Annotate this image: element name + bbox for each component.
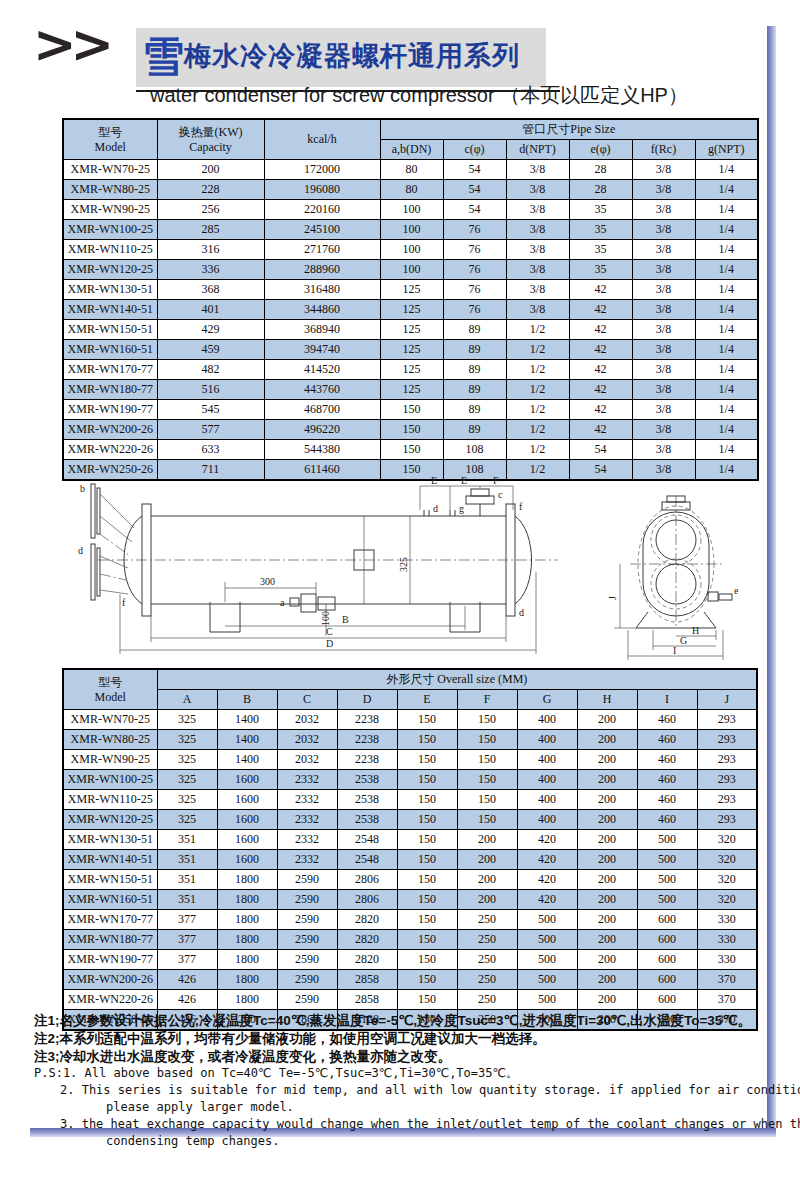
value-cell: 42	[569, 340, 632, 360]
value-cell: 2858	[337, 990, 397, 1010]
sub-col-header: A	[157, 690, 217, 710]
value-cell: 293	[697, 810, 757, 830]
value-cell: 42	[569, 300, 632, 320]
value-cell: 377	[157, 910, 217, 930]
value-cell: 325	[157, 810, 217, 830]
table-row: XMR-WN200-26577496220150891/2423/81/4	[63, 420, 758, 440]
value-cell: 76	[443, 280, 506, 300]
model-cell: XMR-WN170-77	[63, 910, 157, 930]
table-row: XMR-WN160-51459394740125891/2423/81/4	[63, 340, 758, 360]
value-cell: 500	[637, 830, 697, 850]
table-row: XMR-WN150-51429368940125891/2423/81/4	[63, 320, 758, 340]
table-row: XMR-WN110-253251600233225381501504002004…	[63, 790, 757, 810]
value-cell: 1/4	[695, 200, 758, 220]
table-row: XMR-WN200-264261800259028581502505002006…	[63, 970, 757, 990]
table-row: XMR-WN70-2520017200080543/8283/81/4	[63, 160, 758, 180]
value-cell: 271760	[264, 240, 380, 260]
value-cell: 150	[380, 440, 443, 460]
model-cell: XMR-WN90-25	[63, 200, 157, 220]
port-label-d: d	[78, 545, 83, 556]
model-cell: XMR-WN180-77	[63, 930, 157, 950]
value-cell: 200	[577, 870, 637, 890]
value-cell: 35	[569, 240, 632, 260]
value-cell: 2590	[277, 950, 337, 970]
value-cell: 400	[517, 790, 577, 810]
value-cell: 3/8	[506, 240, 569, 260]
dim-label-j: J	[607, 596, 618, 600]
value-cell: 394740	[264, 340, 380, 360]
value-cell: 150	[397, 990, 457, 1010]
sub-col-header: C	[277, 690, 337, 710]
value-cell: 2590	[277, 910, 337, 930]
value-cell: 245100	[264, 220, 380, 240]
value-cell: 500	[637, 850, 697, 870]
col-header-pipe-size: 管口尺寸Pipe Size	[380, 119, 758, 140]
sub-col-header: a,b(DN)	[380, 140, 443, 160]
value-cell: 150	[397, 770, 457, 790]
page-border-right	[767, 26, 776, 1136]
value-cell: 325	[157, 770, 217, 790]
value-cell: 414520	[264, 360, 380, 380]
value-cell: 2538	[337, 770, 397, 790]
value-cell: 250	[457, 930, 517, 950]
value-cell: 3/8	[632, 260, 695, 280]
value-cell: 460	[637, 750, 697, 770]
table-row: XMR-WN160-513511800259028061502004202005…	[63, 890, 757, 910]
model-cell: XMR-WN190-77	[63, 400, 157, 420]
value-cell: 100	[380, 260, 443, 280]
value-cell: 150	[380, 420, 443, 440]
value-cell: 80	[380, 160, 443, 180]
value-cell: 1400	[217, 710, 277, 730]
value-cell: 370	[697, 990, 757, 1010]
value-cell: 89	[443, 360, 506, 380]
model-cell: XMR-WN140-51	[63, 300, 157, 320]
value-cell: 80	[380, 180, 443, 200]
value-cell: 336	[157, 260, 264, 280]
value-cell: 89	[443, 420, 506, 440]
value-cell: 2538	[337, 810, 397, 830]
value-cell: 3/8	[506, 160, 569, 180]
value-cell: 545	[157, 400, 264, 420]
value-cell: 3/8	[632, 420, 695, 440]
model-cell: XMR-WN80-25	[63, 730, 157, 750]
value-cell: 2332	[277, 790, 337, 810]
value-cell: 3/8	[506, 280, 569, 300]
value-cell: 1600	[217, 850, 277, 870]
sub-col-header: D	[337, 690, 397, 710]
sub-col-header: E	[397, 690, 457, 710]
value-cell: 1/2	[506, 400, 569, 420]
table-subheader-row: ABCDEFGHIJ	[63, 690, 757, 710]
value-cell: 2820	[337, 930, 397, 950]
value-cell: 2820	[337, 910, 397, 930]
model-cell: XMR-WN160-51	[63, 340, 157, 360]
value-cell: 76	[443, 240, 506, 260]
value-cell: 42	[569, 380, 632, 400]
value-cell: 150	[380, 400, 443, 420]
value-cell: 1/4	[695, 260, 758, 280]
value-cell: 250	[457, 950, 517, 970]
value-cell: 1/4	[695, 320, 758, 340]
value-cell: 1400	[217, 730, 277, 750]
value-cell: 250	[457, 970, 517, 990]
ps-note-2b: please apply larger model.	[34, 1099, 764, 1116]
sub-col-header: f(Rc)	[632, 140, 695, 160]
value-cell: 293	[697, 750, 757, 770]
value-cell: 1/2	[506, 380, 569, 400]
col-header-model-en: Model	[64, 140, 157, 155]
value-cell: 2820	[337, 950, 397, 970]
ps-note-3b: condensing temp changes.	[34, 1133, 764, 1150]
value-cell: 42	[569, 400, 632, 420]
dim-label-d4: D	[326, 638, 333, 649]
value-cell: 200	[457, 850, 517, 870]
model-cell: XMR-WN130-51	[63, 280, 157, 300]
value-cell: 1800	[217, 890, 277, 910]
value-cell: 200	[577, 970, 637, 990]
value-cell: 42	[569, 320, 632, 340]
value-cell: 500	[637, 870, 697, 890]
value-cell: 3/8	[632, 280, 695, 300]
value-cell: 426	[157, 970, 217, 990]
value-cell: 150	[457, 790, 517, 810]
table-row: XMR-WN140-513511600233225481502004202005…	[63, 850, 757, 870]
value-cell: 400	[517, 710, 577, 730]
col-header-model: 型号 Model	[63, 119, 157, 160]
value-cell: 256	[157, 200, 264, 220]
model-cell: XMR-WN100-25	[63, 220, 157, 240]
value-cell: 496220	[264, 420, 380, 440]
model-cell: XMR-WN110-25	[63, 240, 157, 260]
table-row: XMR-WN140-51401344860125763/8423/81/4	[63, 300, 758, 320]
value-cell: 351	[157, 850, 217, 870]
value-cell: 150	[457, 810, 517, 830]
page-title: 梅水冷冷凝器螺杆通用系列	[184, 41, 520, 71]
value-cell: 200	[577, 790, 637, 810]
value-cell: 200	[457, 890, 517, 910]
value-cell: 320	[697, 870, 757, 890]
title-background: 雪梅水冷冷凝器螺杆通用系列	[136, 28, 546, 87]
value-cell: 3/8	[506, 200, 569, 220]
value-cell: 293	[697, 710, 757, 730]
value-cell: 468700	[264, 400, 380, 420]
value-cell: 200	[577, 730, 637, 750]
ps-note-1: P.S:1. All above based on Tc=40℃ Te=-5℃,…	[34, 1065, 764, 1082]
value-cell: 2548	[337, 850, 397, 870]
value-cell: 200	[577, 830, 637, 850]
sub-col-header: J	[697, 690, 757, 710]
value-cell: 500	[517, 970, 577, 990]
sub-col-header: H	[577, 690, 637, 710]
value-cell: 633	[157, 440, 264, 460]
value-cell: 1/2	[506, 360, 569, 380]
sub-col-header: d(NPT)	[506, 140, 569, 160]
value-cell: 2238	[337, 710, 397, 730]
value-cell: 228	[157, 180, 264, 200]
value-cell: 3/8	[632, 180, 695, 200]
model-cell: XMR-WN90-25	[63, 750, 157, 770]
value-cell: 400	[517, 750, 577, 770]
col-header-capacity-cn: 换热量(KW)	[158, 125, 264, 140]
model-cell: XMR-WN70-25	[63, 710, 157, 730]
value-cell: 330	[697, 950, 757, 970]
value-cell: 288960	[264, 260, 380, 280]
dim-label-c2: C	[326, 626, 333, 637]
value-cell: 293	[697, 770, 757, 790]
value-cell: 35	[569, 200, 632, 220]
value-cell: 325	[157, 790, 217, 810]
value-cell: 429	[157, 320, 264, 340]
value-cell: 3/8	[632, 400, 695, 420]
value-cell: 2590	[277, 890, 337, 910]
value-cell: 325	[157, 710, 217, 730]
value-cell: 1800	[217, 950, 277, 970]
value-cell: 330	[697, 930, 757, 950]
model-cell: XMR-WN120-25	[63, 260, 157, 280]
value-cell: 54	[443, 160, 506, 180]
value-cell: 200	[577, 990, 637, 1010]
table-row: XMR-WN70-2532514002032223815015040020046…	[63, 710, 757, 730]
col-header-model-cn: 型号	[64, 675, 157, 690]
table-row: XMR-WN100-25285245100100763/8353/81/4	[63, 220, 758, 240]
port-label-b: b	[80, 483, 85, 494]
value-cell: 420	[517, 850, 577, 870]
value-cell: 150	[397, 910, 457, 930]
value-cell: 89	[443, 400, 506, 420]
value-cell: 35	[569, 220, 632, 240]
model-cell: XMR-WN100-25	[63, 770, 157, 790]
value-cell: 600	[637, 910, 697, 930]
table-row: XMR-WN80-2532514002032223815015040020046…	[63, 730, 757, 750]
value-cell: 2806	[337, 870, 397, 890]
value-cell: 2032	[277, 750, 337, 770]
value-cell: 150	[397, 790, 457, 810]
value-cell: 1/2	[506, 440, 569, 460]
overall-size-table: 型号 Model 外形尺寸 Overall size (MM) ABCDEFGH…	[62, 668, 758, 1031]
value-cell: 2238	[337, 750, 397, 770]
value-cell: 2032	[277, 710, 337, 730]
value-cell: 150	[397, 930, 457, 950]
table-row: XMR-WN130-513511600233225481502004202005…	[63, 830, 757, 850]
value-cell: 2590	[277, 870, 337, 890]
value-cell: 1400	[217, 750, 277, 770]
value-cell: 54	[443, 200, 506, 220]
value-cell: 460	[637, 790, 697, 810]
model-cell: XMR-WN200-26	[63, 970, 157, 990]
table-row: XMR-WN220-264261800259028581502505002006…	[63, 990, 757, 1010]
sub-col-header: B	[217, 690, 277, 710]
value-cell: 1/4	[695, 180, 758, 200]
value-cell: 420	[517, 890, 577, 910]
value-cell: 1600	[217, 810, 277, 830]
dim-label-h: H	[692, 625, 699, 636]
value-cell: 482	[157, 360, 264, 380]
value-cell: 28	[569, 160, 632, 180]
value-cell: 150	[457, 730, 517, 750]
value-cell: 1/4	[695, 340, 758, 360]
value-cell: 125	[380, 320, 443, 340]
model-cell: XMR-WN160-51	[63, 890, 157, 910]
value-cell: 100	[380, 200, 443, 220]
value-cell: 150	[397, 750, 457, 770]
value-cell: 320	[697, 890, 757, 910]
value-cell: 196080	[264, 180, 380, 200]
model-cell: XMR-WN110-25	[63, 790, 157, 810]
value-cell: 3/8	[632, 320, 695, 340]
value-cell: 1/2	[506, 340, 569, 360]
value-cell: 2590	[277, 970, 337, 990]
ps-note-3: 3. the heat exchange capacity would chan…	[34, 1116, 764, 1133]
value-cell: 220160	[264, 200, 380, 220]
value-cell: 150	[457, 770, 517, 790]
brand-logo-char: 雪	[142, 34, 184, 80]
col-header-model: 型号 Model	[63, 669, 157, 710]
value-cell: 150	[397, 830, 457, 850]
value-cell: 426	[157, 990, 217, 1010]
value-cell: 500	[637, 890, 697, 910]
value-cell: 3/8	[632, 300, 695, 320]
table-row: XMR-WN220-266335443801501081/2543/81/4	[63, 440, 758, 460]
value-cell: 42	[569, 420, 632, 440]
dim-label-b2: B	[342, 614, 349, 625]
value-cell: 460	[637, 770, 697, 790]
model-cell: XMR-WN80-25	[63, 180, 157, 200]
value-cell: 150	[397, 710, 457, 730]
value-cell: 377	[157, 930, 217, 950]
table-row: XMR-WN130-51368316480125763/8423/81/4	[63, 280, 758, 300]
table-row: XMR-WN150-513511800259028061502004202005…	[63, 870, 757, 890]
value-cell: 150	[397, 810, 457, 830]
value-cell: 1600	[217, 770, 277, 790]
col-header-kcal: kcal/h	[264, 119, 380, 160]
model-cell: XMR-WN120-25	[63, 810, 157, 830]
model-cell: XMR-WN220-26	[63, 990, 157, 1010]
value-cell: 2238	[337, 730, 397, 750]
value-cell: 1800	[217, 870, 277, 890]
value-cell: 3/8	[632, 240, 695, 260]
value-cell: 200	[577, 770, 637, 790]
value-cell: 325	[157, 750, 217, 770]
value-cell: 2806	[337, 890, 397, 910]
value-cell: 150	[457, 750, 517, 770]
value-cell: 368	[157, 280, 264, 300]
value-cell: 577	[157, 420, 264, 440]
model-cell: XMR-WN200-26	[63, 420, 157, 440]
note-3: 注3;冷却水进出水温度改变，或者冷凝温度变化，换热量亦随之改变。	[34, 1048, 764, 1066]
value-cell: 1/4	[695, 300, 758, 320]
value-cell: 108	[443, 440, 506, 460]
table-row: XMR-WN180-773771800259028201502505002006…	[63, 930, 757, 950]
value-cell: 516	[157, 380, 264, 400]
port-label-g: g	[459, 503, 464, 514]
value-cell: 2032	[277, 730, 337, 750]
value-cell: 500	[517, 950, 577, 970]
value-cell: 1/4	[695, 400, 758, 420]
table-row: XMR-WN100-253251600233225381501504002004…	[63, 770, 757, 790]
value-cell: 76	[443, 220, 506, 240]
value-cell: 2548	[337, 830, 397, 850]
value-cell: 1800	[217, 930, 277, 950]
value-cell: 600	[637, 990, 697, 1010]
value-cell: 325	[157, 730, 217, 750]
table-row: XMR-WN180-77516443760125891/2423/81/4	[63, 380, 758, 400]
value-cell: 42	[569, 360, 632, 380]
value-cell: 150	[397, 970, 457, 990]
model-cell: XMR-WN130-51	[63, 830, 157, 850]
col-header-capacity: 换热量(KW) Capacity	[157, 119, 264, 160]
value-cell: 320	[697, 850, 757, 870]
value-cell: 401	[157, 300, 264, 320]
value-cell: 200	[457, 830, 517, 850]
value-cell: 200	[577, 850, 637, 870]
value-cell: 1800	[217, 990, 277, 1010]
table-row: XMR-WN90-25256220160100543/8353/81/4	[63, 200, 758, 220]
value-cell: 600	[637, 930, 697, 950]
model-cell: XMR-WN180-77	[63, 380, 157, 400]
notes-block: 注1;名义参数设计依据公况;冷凝温度Tc=40℃,蒸发温度Te=-5℃,过冷度T…	[34, 1012, 764, 1149]
value-cell: 200	[577, 930, 637, 950]
model-cell: XMR-WN150-51	[63, 320, 157, 340]
value-cell: 1/4	[695, 220, 758, 240]
value-cell: 2332	[277, 810, 337, 830]
value-cell: 125	[380, 280, 443, 300]
value-cell: 150	[397, 850, 457, 870]
table-row: XMR-WN170-773771800259028201502505002006…	[63, 910, 757, 930]
dim-label-e1: E	[431, 476, 437, 486]
value-cell: 200	[577, 750, 637, 770]
value-cell: 3/8	[632, 200, 695, 220]
value-cell: 150	[397, 730, 457, 750]
port-label-a: a	[280, 597, 285, 608]
table-row: XMR-WN80-2522819608080543/8283/81/4	[63, 180, 758, 200]
value-cell: 250	[457, 990, 517, 1010]
col-header-overall-size: 外形尺寸 Overall size (MM)	[157, 669, 757, 690]
value-cell: 1/4	[695, 360, 758, 380]
value-cell: 200	[577, 890, 637, 910]
page-subtitle: water condenser for screw compressor （本页…	[150, 82, 688, 109]
value-cell: 1600	[217, 790, 277, 810]
value-cell: 293	[697, 730, 757, 750]
value-cell: 400	[517, 770, 577, 790]
port-label-f2: f	[519, 501, 523, 512]
value-cell: 1/2	[506, 320, 569, 340]
note-1: 注1;名义参数设计依据公况;冷凝温度Tc=40℃,蒸发温度Te=-5℃,过冷度T…	[34, 1012, 764, 1030]
model-cell: XMR-WN170-77	[63, 360, 157, 380]
value-cell: 500	[517, 990, 577, 1010]
value-cell: 2332	[277, 770, 337, 790]
value-cell: 420	[517, 870, 577, 890]
value-cell: 351	[157, 890, 217, 910]
value-cell: 320	[697, 830, 757, 850]
sub-col-header: e(φ)	[569, 140, 632, 160]
value-cell: 600	[637, 950, 697, 970]
value-cell: 2858	[337, 970, 397, 990]
value-cell: 172000	[264, 160, 380, 180]
dim-label-i: I	[673, 645, 676, 656]
value-cell: 351	[157, 870, 217, 890]
dim-label-f: F	[493, 476, 499, 486]
value-cell: 420	[517, 830, 577, 850]
value-cell: 100	[380, 240, 443, 260]
value-cell: 1800	[217, 910, 277, 930]
value-cell: 370	[697, 970, 757, 990]
value-cell: 1/4	[695, 160, 758, 180]
value-cell: 2590	[277, 990, 337, 1010]
value-cell: 2332	[277, 830, 337, 850]
sub-col-header: g(NPT)	[695, 140, 758, 160]
value-cell: 125	[380, 300, 443, 320]
